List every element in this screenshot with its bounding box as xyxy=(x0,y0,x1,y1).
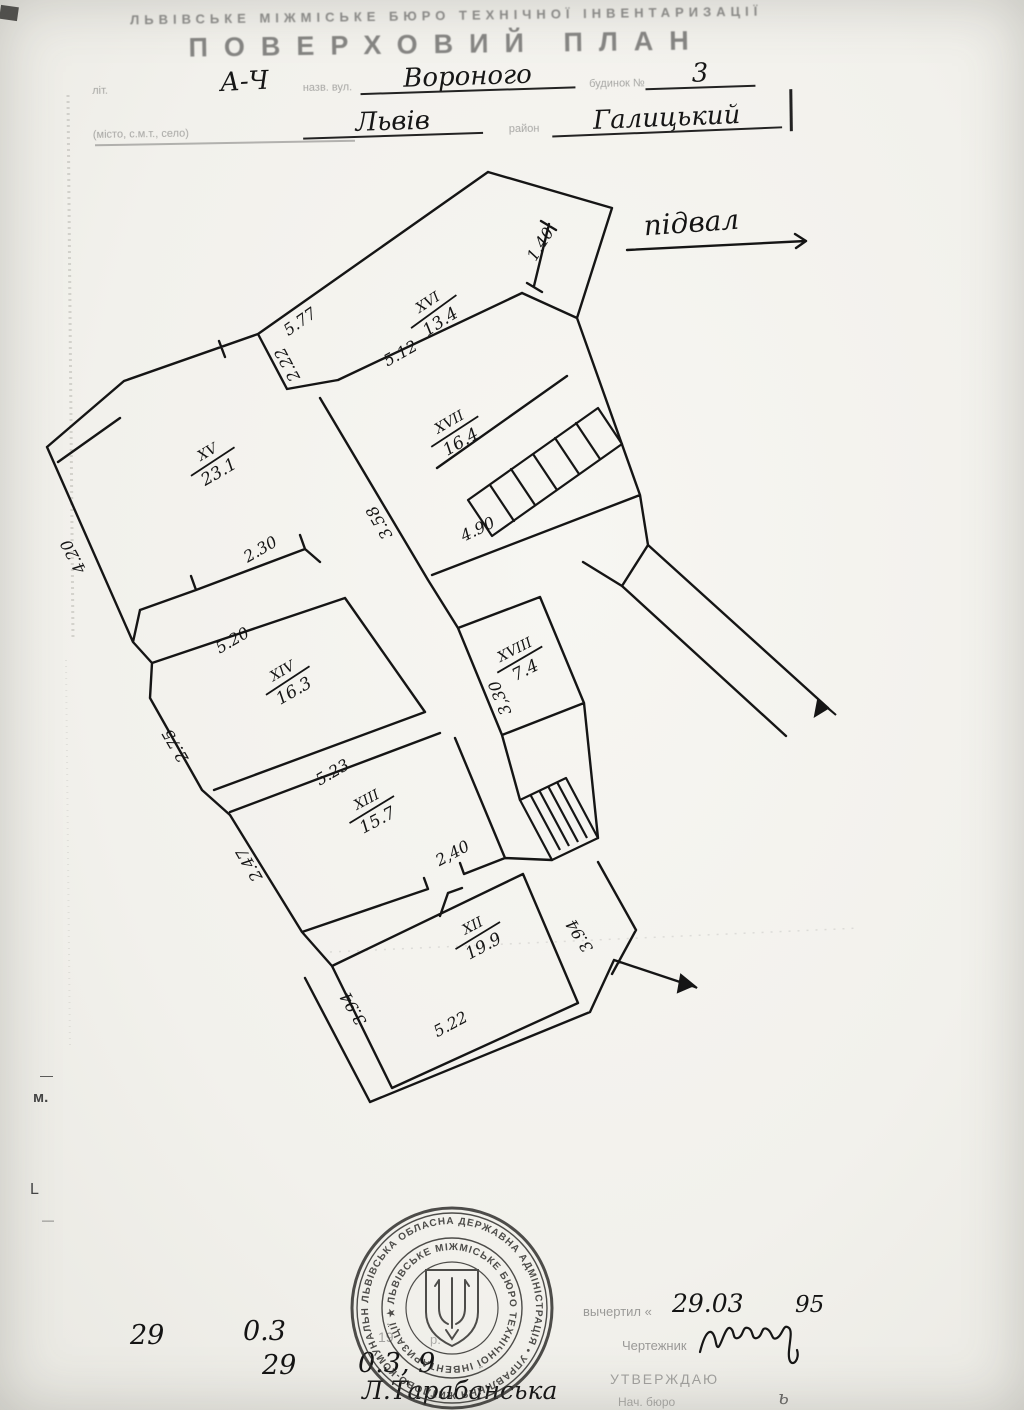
chief-signature: ь xyxy=(778,1385,789,1409)
scan-streak-2 xyxy=(66,660,70,1050)
dimension-label: 1.40 xyxy=(523,224,558,264)
dimension-label: 5.77 xyxy=(280,303,321,339)
dimension-label: 2,40 xyxy=(431,836,472,870)
dimension-label: 5.23 xyxy=(312,755,352,789)
direction-arrows xyxy=(678,700,836,992)
margin-dash: — xyxy=(40,1068,53,1083)
date-day-1: 29 xyxy=(129,1320,164,1351)
official-stamp: ЛЬВІВСЬКА ОБЛАСНА ДЕРЖАВНА АДМІНІСТРАЦІЯ… xyxy=(352,1208,552,1408)
room-label-xvii: XVII 16.4 xyxy=(421,402,490,466)
dimension-label: 4.20 xyxy=(56,536,90,577)
date-month-1: 0.3 xyxy=(243,1316,286,1347)
margin-mark-m: м. xyxy=(33,1089,48,1106)
floor-label: підвал xyxy=(643,203,741,243)
dimension-label: 3.94 xyxy=(562,916,597,956)
dimension-label: 5.12 xyxy=(380,336,420,370)
margin-mark-l: L xyxy=(30,1181,39,1198)
dimension-label: 4.90 xyxy=(457,513,498,546)
room-label-xv: XV 23.1 xyxy=(181,433,247,495)
fold-line xyxy=(330,928,860,952)
scanned-document-page: ЛЬВІВСЬКЕ МІЖМІСЬКЕ БЮРО ТЕХНІЧНОЇ ІНВЕН… xyxy=(0,0,1024,1410)
draftsman-label: Чертежник xyxy=(622,1338,687,1353)
draftsman-signature xyxy=(700,1327,798,1363)
chief-label: Нач. бюро xyxy=(618,1395,676,1409)
date-day-2: 29 xyxy=(261,1350,296,1381)
drawn-label: вычертил « xyxy=(583,1304,652,1319)
floor-plan-drawing: підвал XVI 13.4 XVII 16.4 XV 23.1 XVIII … xyxy=(0,0,1024,1410)
margin-dash-2: — xyxy=(42,1213,54,1227)
drawn-date: 29.03 xyxy=(671,1289,744,1318)
dimension-label: 3.58 xyxy=(362,503,396,543)
room-label-xiii: XIII 15.7 xyxy=(340,781,405,842)
trident-icon xyxy=(435,1278,469,1339)
dimension-label: 3,30 xyxy=(484,678,515,718)
dimension-label: 2.75 xyxy=(158,726,193,767)
approve-label: УТВЕРЖДАЮ xyxy=(610,1371,719,1387)
dimension-label: 5.22 xyxy=(430,1007,470,1041)
staircase-hatched xyxy=(520,778,598,860)
room-label-xiv: XIV 16.3 xyxy=(256,652,322,714)
room-label-xii: XII 19.9 xyxy=(446,907,511,968)
dimension-label: 3.94 xyxy=(336,989,370,1029)
drawn-year: 95 xyxy=(795,1292,824,1318)
margin-marks: — м. L — xyxy=(30,1068,54,1227)
dimension-label: 5.20 xyxy=(212,623,252,657)
floor-label-group: підвал xyxy=(627,203,806,250)
room-area: 7.4 xyxy=(509,656,542,686)
